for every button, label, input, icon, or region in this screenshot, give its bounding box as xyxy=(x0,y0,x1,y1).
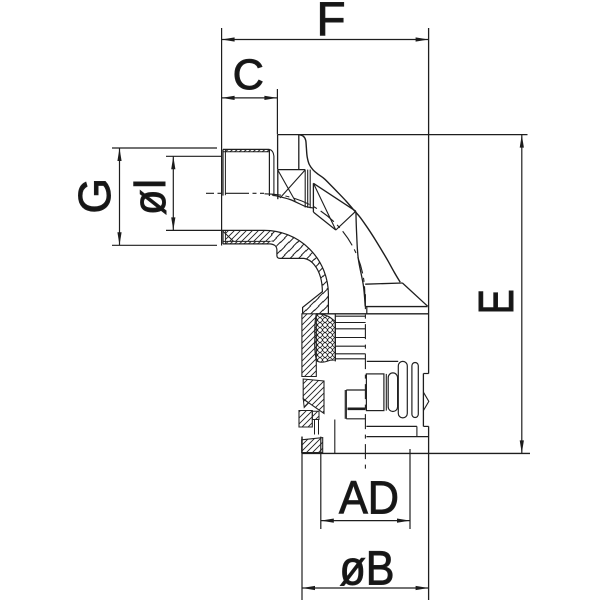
svg-text:F: F xyxy=(316,0,345,46)
svg-text:C: C xyxy=(233,51,264,99)
svg-text:øB: øB xyxy=(340,542,395,595)
svg-text:AD: AD xyxy=(339,471,399,523)
svg-text:G: G xyxy=(69,178,120,213)
svg-text:øI: øI xyxy=(124,178,175,215)
svg-text:E: E xyxy=(470,289,524,314)
